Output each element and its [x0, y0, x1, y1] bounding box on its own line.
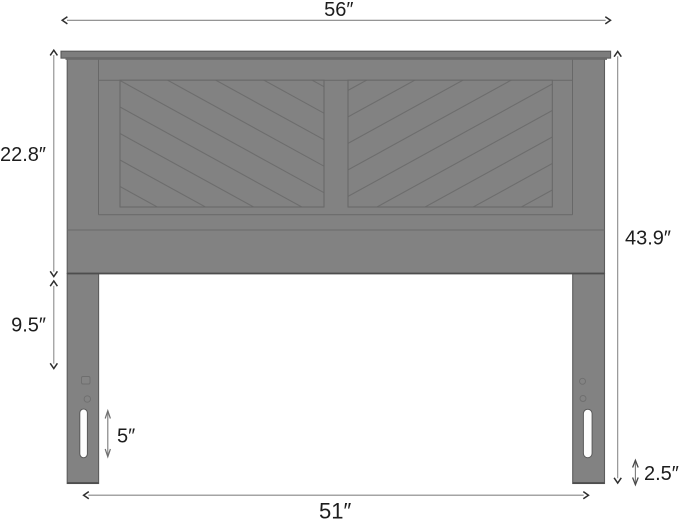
svg-text:2.5″: 2.5″: [644, 463, 679, 485]
svg-text:51″: 51″: [319, 499, 351, 520]
svg-text:5″: 5″: [117, 426, 135, 448]
svg-text:56″: 56″: [324, 0, 353, 21]
svg-text:22.8″: 22.8″: [0, 144, 46, 166]
svg-text:43.9″: 43.9″: [625, 227, 671, 249]
svg-text:9.5″: 9.5″: [11, 314, 46, 336]
